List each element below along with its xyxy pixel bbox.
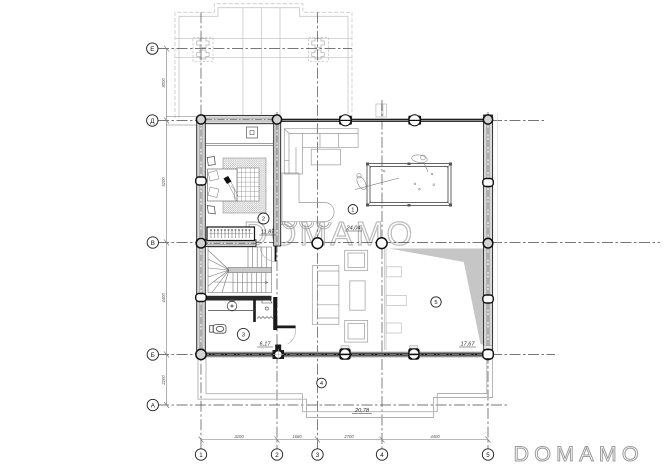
svg-text:3: 3 [242, 333, 245, 339]
svg-text:2700: 2700 [343, 434, 354, 439]
svg-text:4400: 4400 [161, 293, 166, 303]
svg-text:17,67: 17,67 [461, 342, 476, 348]
svg-text:3200: 3200 [234, 434, 244, 439]
svg-text:5200: 5200 [161, 177, 166, 187]
svg-text:20,78: 20,78 [354, 408, 370, 414]
svg-text:DOMAMO: DOMAMO [514, 442, 644, 466]
svg-text:2200: 2200 [161, 375, 166, 386]
svg-text:24,04: 24,04 [346, 226, 361, 232]
svg-text:Б: Б [151, 352, 155, 359]
svg-text:6,17: 6,17 [260, 342, 272, 348]
svg-text:3: 3 [316, 452, 320, 459]
svg-text:В: В [151, 240, 155, 247]
svg-text:1: 1 [351, 207, 354, 213]
svg-text:2: 2 [275, 452, 279, 459]
svg-text:5: 5 [434, 300, 437, 306]
svg-text:1680: 1680 [292, 434, 302, 439]
svg-text:5: 5 [486, 452, 490, 459]
svg-text:3000: 3000 [161, 78, 166, 88]
svg-text:2: 2 [262, 217, 265, 223]
svg-text:Е: Е [150, 46, 154, 53]
svg-text:4400: 4400 [430, 434, 440, 439]
svg-text:4: 4 [380, 452, 384, 459]
svg-text:11,87: 11,87 [261, 230, 275, 236]
svg-text:1: 1 [199, 452, 203, 459]
